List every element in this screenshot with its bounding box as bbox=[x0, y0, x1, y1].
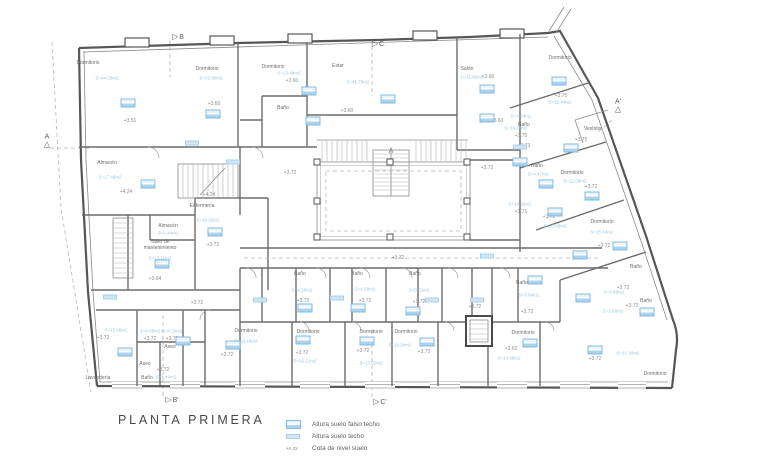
plan-title: PLANTA PRIMERA bbox=[118, 413, 265, 427]
ceiling-height-box bbox=[640, 308, 655, 317]
courtyard bbox=[314, 159, 470, 240]
section-arrow-icon: ▷ bbox=[172, 33, 178, 41]
ceiling-height-box bbox=[513, 158, 528, 167]
floor-height-box bbox=[480, 254, 494, 259]
floor-height-box bbox=[185, 141, 199, 146]
pilaster bbox=[288, 34, 312, 43]
section-letter: C' bbox=[380, 399, 386, 406]
ceiling-height-box bbox=[539, 180, 554, 189]
stair-left bbox=[178, 164, 238, 198]
section-arrow-icon: △ bbox=[615, 106, 621, 114]
ceiling-height-box bbox=[548, 208, 563, 217]
ceiling-height-box bbox=[406, 307, 421, 316]
section-marker: ▷B bbox=[172, 33, 184, 41]
legend-label: Altura suelo techo bbox=[312, 433, 364, 440]
walls-top-band bbox=[79, 34, 520, 150]
ceiling-height-box bbox=[298, 304, 313, 313]
pilaster bbox=[413, 31, 437, 40]
wall-right-diagonal bbox=[548, 31, 677, 388]
service-shaft bbox=[466, 316, 492, 346]
floor-height-box-icon bbox=[286, 434, 300, 439]
ceiling-height-box bbox=[552, 77, 567, 86]
walls-bedroom-row bbox=[292, 322, 540, 386]
stair-flights bbox=[317, 140, 468, 196]
ceiling-height-box bbox=[155, 260, 170, 269]
legend-label: Cota de nivel suelo bbox=[312, 445, 367, 452]
floor-height-box bbox=[253, 298, 267, 303]
ceiling-height-box bbox=[523, 339, 538, 348]
section-letter: C bbox=[379, 41, 384, 48]
section-arrow-icon: ▷ bbox=[165, 396, 171, 404]
ceiling-height-box bbox=[118, 348, 133, 357]
ceiling-height-box bbox=[420, 338, 435, 347]
level-mark-icon: +x.xx bbox=[286, 446, 298, 452]
floor-height-box bbox=[330, 296, 344, 301]
ceiling-height-box bbox=[208, 228, 223, 237]
legend-item-floor-level: +x.xx Cota de nivel suelo bbox=[286, 444, 380, 453]
ceiling-height-box bbox=[302, 87, 317, 96]
section-arrow-icon: ▷ bbox=[373, 398, 379, 406]
ceiling-height-box bbox=[206, 110, 221, 119]
ceiling-height-box bbox=[141, 180, 156, 189]
section-marker: ▷C' bbox=[373, 398, 387, 406]
walls-right-band bbox=[470, 83, 646, 322]
floor-height-box bbox=[226, 160, 240, 165]
legend-label: Altura suelo falso techo bbox=[312, 421, 380, 428]
stair-small-left bbox=[113, 218, 133, 278]
ceiling-height-box bbox=[480, 85, 495, 94]
ceiling-height-box bbox=[381, 95, 396, 104]
floor-height-box bbox=[513, 145, 527, 150]
wall-spur bbox=[549, 7, 571, 33]
section-letter: B' bbox=[173, 397, 179, 404]
section-letter: B bbox=[179, 34, 184, 41]
ceiling-height-box bbox=[613, 242, 628, 251]
ceiling-height-box bbox=[176, 337, 191, 346]
ceiling-height-box bbox=[585, 192, 600, 201]
walls-bath-row bbox=[240, 268, 560, 322]
ceiling-height-box bbox=[121, 99, 136, 108]
ceiling-height-box bbox=[480, 114, 495, 123]
legend: Altura suelo falso techo Altura suelo te… bbox=[286, 420, 380, 456]
pilaster bbox=[210, 36, 234, 45]
ceiling-height-box bbox=[306, 117, 321, 126]
walls-left-zone bbox=[82, 147, 268, 310]
floor-height-box bbox=[425, 298, 439, 303]
section-marker: ▷C bbox=[372, 40, 384, 48]
ceiling-height-box bbox=[296, 336, 311, 345]
floor-height-box bbox=[103, 295, 117, 300]
floor-plan-drawing bbox=[0, 0, 768, 461]
ceiling-height-box bbox=[588, 346, 603, 355]
section-marker: ▷B' bbox=[165, 396, 178, 404]
floor-plan-canvas: DormitorioDormitorioDormitorioEstarSalón… bbox=[0, 0, 768, 461]
ceiling-height-box bbox=[576, 294, 591, 303]
floor-height-box bbox=[470, 298, 484, 303]
legend-item-false-ceiling: Altura suelo falso techo bbox=[286, 420, 380, 429]
ceiling-height-box bbox=[226, 341, 241, 350]
pilaster bbox=[125, 38, 149, 47]
section-arrow-icon: △ bbox=[44, 141, 50, 149]
ceiling-height-box bbox=[360, 337, 375, 346]
legend-item-ceiling: Altura suelo techo bbox=[286, 432, 380, 441]
ceiling-height-box bbox=[573, 251, 588, 260]
wall-inner-faces bbox=[83, 36, 668, 382]
bottom-windows bbox=[112, 382, 646, 389]
section-arrow-icon: ▷ bbox=[372, 40, 378, 48]
ceiling-height-box bbox=[564, 144, 579, 153]
ceiling-height-box bbox=[528, 276, 543, 285]
section-marker: A'△ bbox=[615, 99, 621, 114]
section-marker: A△ bbox=[44, 134, 50, 149]
ceiling-height-box-icon bbox=[286, 420, 301, 429]
ceiling-height-box bbox=[351, 304, 366, 313]
